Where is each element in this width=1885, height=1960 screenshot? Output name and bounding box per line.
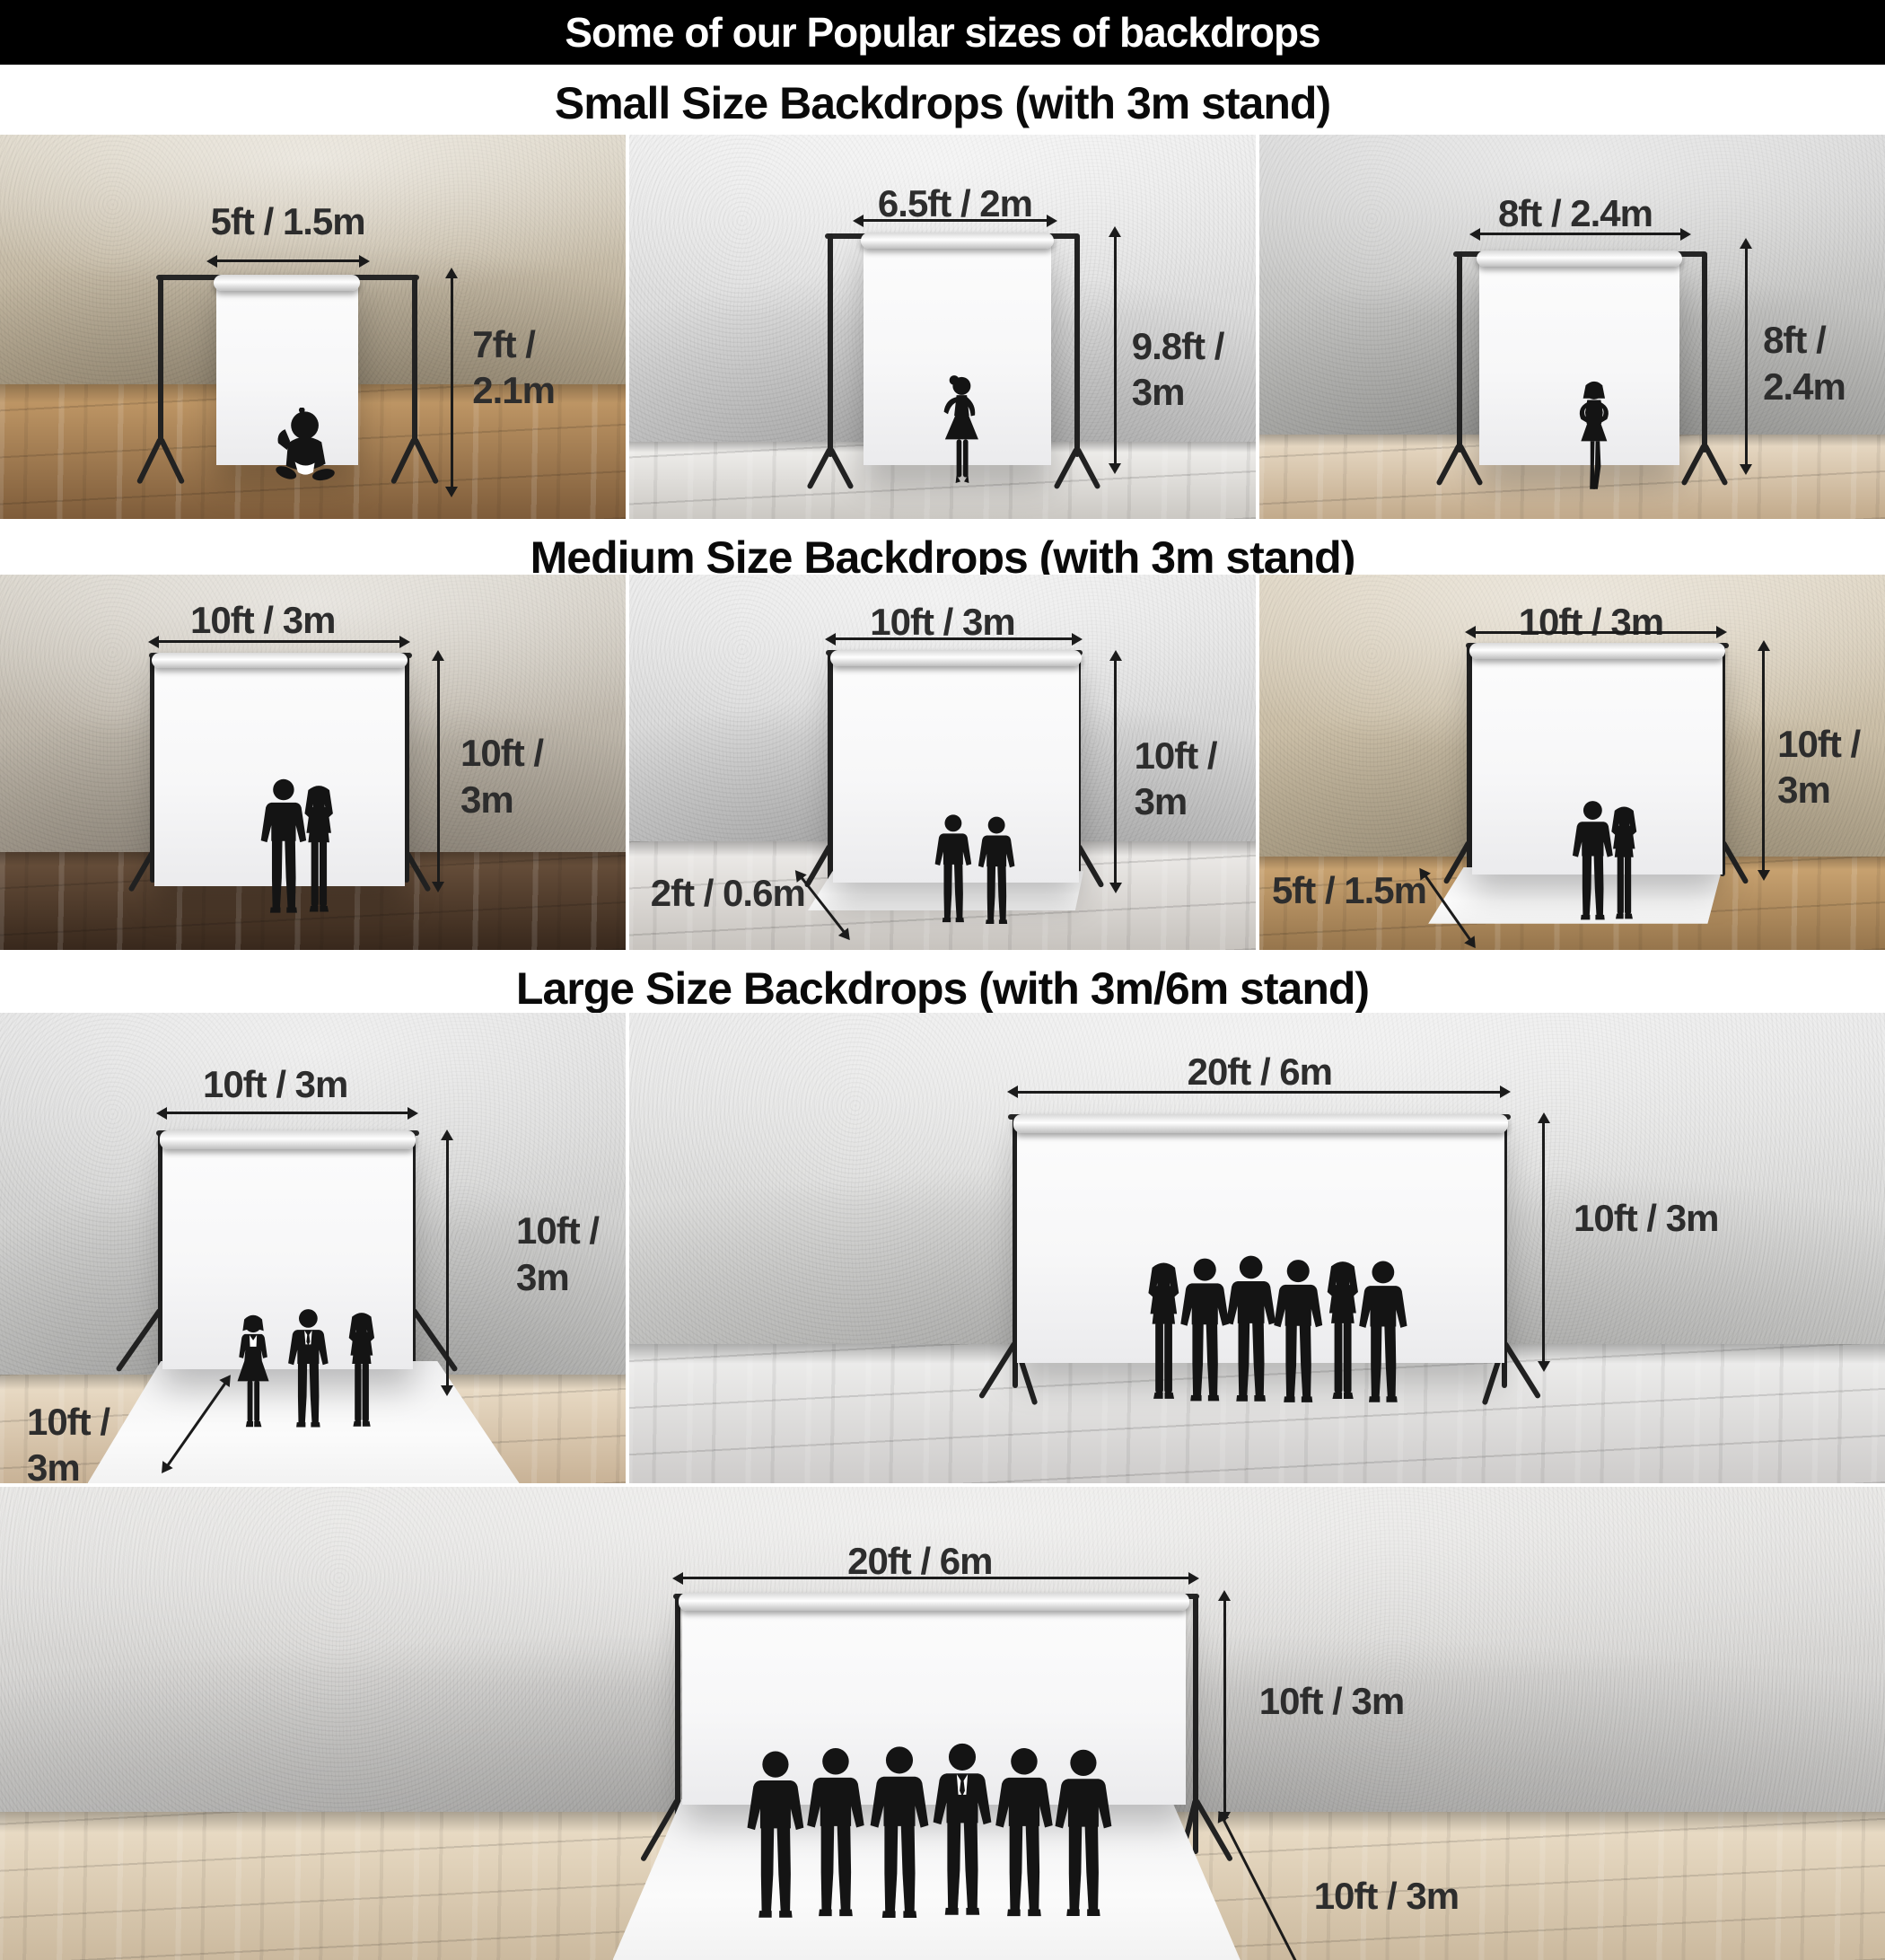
backdrop-roll (1477, 250, 1682, 267)
baby-silhouette (257, 408, 357, 485)
floor-depth-label: 5ft / 1.5m (1272, 867, 1426, 913)
backdrop-roll (160, 1130, 415, 1149)
height-arrow (446, 1139, 449, 1385)
width-arrow (158, 640, 400, 643)
panel-large-20x10-sweep: 20ft / 6m 10ft / 3m 10ft / 3m (0, 1487, 1885, 1960)
panel-small-8x8: 8ft / 2.4m 8ft / 2.4m (1259, 135, 1885, 519)
width-label: 5ft / 1.5m (211, 198, 365, 244)
width-arrow (1479, 233, 1680, 235)
panel-large-20x10: 20ft / 6m 10ft / 3m (629, 1013, 1885, 1483)
three-people-silhouette (222, 1226, 397, 1428)
stand-pole-right (412, 276, 417, 444)
width-arrow (863, 219, 1048, 222)
stand-pole-left (828, 233, 833, 456)
two-men-silhouette (924, 742, 1027, 924)
height-label: 10ft / 3m (460, 730, 543, 822)
infographic-page: Some of our Popular sizes of backdrops S… (0, 0, 1885, 1960)
stand-pole-right (404, 654, 409, 883)
height-arrow (1542, 1122, 1545, 1362)
backdrop-roll (1013, 1114, 1508, 1133)
floor-depth-label: 10ft / 3m (27, 1399, 110, 1483)
height-label: 10ft / 3m (1574, 1195, 1718, 1241)
width-arrow (835, 637, 1073, 640)
width-arrow (166, 1112, 408, 1114)
panel-medium-10x10-sweep: 10ft / 3m 10ft / 3m 5ft / 1.5m (1259, 575, 1885, 950)
header-bar: Some of our Popular sizes of backdrops (0, 0, 1885, 65)
height-arrow (1745, 248, 1748, 465)
height-arrow (451, 277, 453, 488)
width-label: 8ft / 2.4m (1498, 190, 1653, 236)
height-label: 10ft / 3m (1777, 721, 1860, 813)
stand-pole-right (1702, 252, 1707, 453)
stand-pole-left (158, 276, 163, 444)
stand-pole-left (1457, 252, 1462, 453)
backdrop-roll (861, 233, 1054, 249)
backdrop-roll (152, 653, 407, 669)
height-label: 8ft / 2.4m (1763, 317, 1846, 409)
panel-medium-10x10-couple: 10ft / 3m 10ft / 3m (0, 575, 626, 950)
width-label: 10ft / 3m (1519, 599, 1663, 645)
girl-silhouette (927, 357, 996, 484)
height-arrow (1223, 1600, 1226, 1813)
height-arrow (437, 660, 440, 883)
six-people-silhouette (1126, 1217, 1427, 1403)
width-arrow (682, 1577, 1189, 1579)
stand-pole-right (1074, 233, 1080, 456)
backdrop-roll (1469, 643, 1724, 659)
panel-large-10x10-sweep: 10ft / 3m 10ft / 3m 10ft / 3m (0, 1013, 626, 1483)
six-men-silhouette (730, 1700, 1135, 1917)
panel-medium-10x10-two-men: 10ft / 3m 10ft / 3m 2ft / 0.6m (629, 575, 1256, 950)
couple-silhouette (1560, 730, 1661, 921)
height-label: 10ft / 3m (516, 1208, 599, 1299)
height-label: 10ft / 3m (1259, 1678, 1404, 1724)
page-title: Some of our Popular sizes of backdrops (565, 8, 1319, 57)
panel-small-5x7: 5ft / 1.5m 7ft / 2.1m (0, 135, 626, 519)
width-label: 10ft / 3m (203, 1061, 347, 1107)
floor-depth-label: 10ft / 3m (1314, 1873, 1459, 1919)
panel-small-6x9: 6.5ft / 2m 9.8ft / 3m (629, 135, 1256, 519)
backdrop-roll (830, 650, 1082, 666)
section-title-small: Small Size Backdrops (with 3m stand) (0, 77, 1885, 129)
width-arrow (1017, 1091, 1501, 1094)
height-arrow (1114, 236, 1117, 465)
width-label: 10ft / 3m (190, 597, 335, 643)
couple-silhouette (247, 734, 359, 915)
width-arrow (1475, 631, 1717, 634)
height-label: 7ft / 2.1m (472, 321, 555, 413)
height-label: 10ft / 3m (1135, 733, 1217, 824)
backdrop-roll (679, 1593, 1189, 1611)
height-label: 9.8ft / 3m (1132, 323, 1224, 415)
height-arrow (1762, 650, 1765, 872)
section-title-large: Large Size Backdrops (with 3m/6m stand) (0, 962, 1885, 1015)
backdrop-roll (214, 275, 360, 291)
floor-depth-label: 2ft / 0.6m (651, 870, 805, 916)
width-label: 20ft / 6m (1188, 1049, 1332, 1094)
width-arrow (216, 259, 360, 262)
posing-woman-silhouette (1563, 340, 1626, 490)
height-arrow (1114, 660, 1117, 883)
